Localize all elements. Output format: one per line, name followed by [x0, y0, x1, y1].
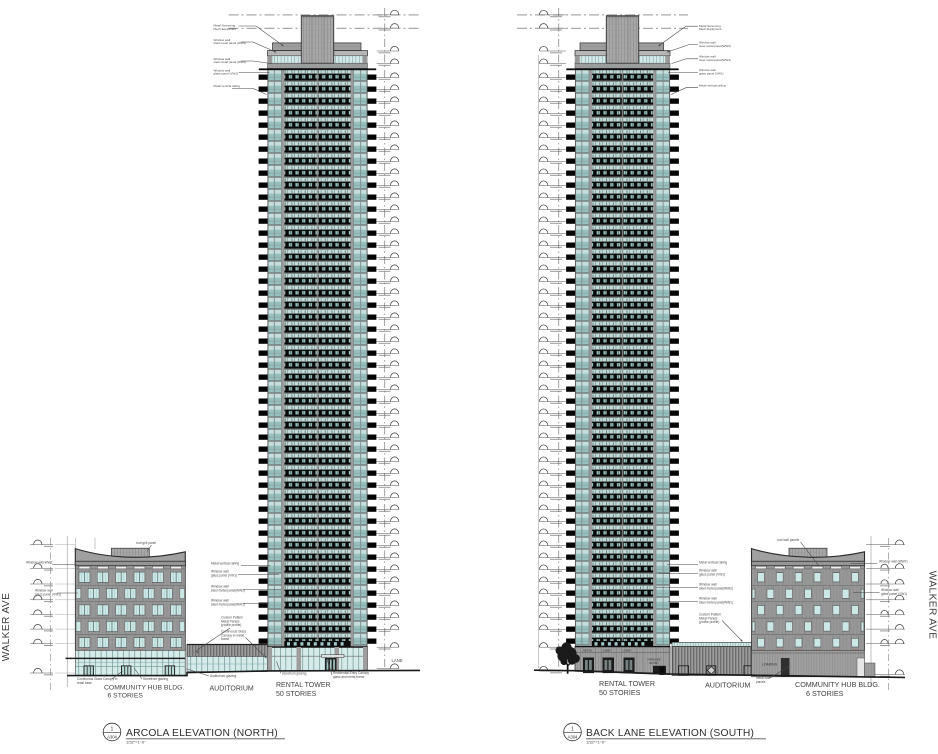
svg-text:steel metal panel(WW1): steel metal panel(WW1)	[699, 58, 731, 62]
svg-text:50 STORIES: 50 STORIES	[276, 691, 317, 698]
svg-text:panels: panels	[756, 680, 766, 684]
svg-text:(profile profile): (profile profile)	[699, 620, 719, 624]
svg-text:steel metal panel(WW2): steel metal panel(WW2)	[699, 44, 731, 48]
svg-text:Window wall WW2: Window wall WW2	[26, 561, 53, 565]
svg-text:Storefront glazing: Storefront glazing	[143, 677, 168, 681]
svg-text:storefront glazing: storefront glazing	[282, 672, 307, 676]
svg-text:glass panel (VW1): glass panel (VW1)	[211, 573, 237, 577]
svg-text:6 STORIES: 6 STORIES	[806, 689, 844, 698]
svg-text:AUDITORIUM: AUDITORIUM	[210, 685, 254, 692]
svg-text:ARCOLA ELEVATION (NORTH): ARCOLA ELEVATION (NORTH)	[126, 728, 278, 739]
svg-text:(profile profile): (profile profile)	[221, 623, 241, 627]
svg-text:roof wall panels: roof wall panels	[777, 538, 800, 542]
svg-text:Auditorium glazing: Auditorium glazing	[210, 674, 236, 678]
svg-text:roof grill panel: roof grill panel	[136, 541, 156, 545]
svg-text:COMMUNITY HUB BLDG.: COMMUNITY HUB BLDG.	[795, 680, 880, 689]
svg-text:steel metal panel(WW1): steel metal panel(WW1)	[699, 600, 733, 604]
svg-text:1: 1	[111, 727, 114, 733]
svg-text:RETAIL: RETAIL	[583, 649, 593, 653]
svg-text:1/32"=1'-0": 1/32"=1'-0"	[586, 739, 606, 744]
svg-text:RENTAL TOWER: RENTAL TOWER	[599, 679, 655, 688]
svg-text:BACK LANE ELEVATION (SOUTH): BACK LANE ELEVATION (SOUTH)	[586, 728, 754, 739]
svg-text:frame: frame	[221, 637, 229, 641]
svg-text:ENTRY: ENTRY	[650, 661, 660, 665]
svg-text:6 STORIES: 6 STORIES	[108, 693, 144, 700]
svg-text:retail base: retail base	[77, 681, 92, 685]
svg-text:Metal vertical railing: Metal vertical railing	[699, 84, 726, 88]
svg-text:LOBBY: LOBBY	[623, 649, 632, 653]
svg-text:steel metal panel (WW2): steel metal panel (WW2)	[214, 41, 247, 45]
svg-text:Window wall (WW2): Window wall (WW2)	[879, 560, 908, 564]
svg-text:AUDITORIUM: AUDITORIUM	[705, 681, 750, 690]
svg-text:RENTAL TOWER: RENTAL TOWER	[276, 682, 331, 689]
svg-text:A304: A304	[568, 735, 578, 740]
svg-text:Metal vertical railing: Metal vertical railing	[211, 562, 239, 566]
svg-text:LOBBY: LOBBY	[603, 649, 612, 653]
svg-text:Metal vertical railing: Metal vertical railing	[699, 561, 727, 565]
svg-text:A304: A304	[107, 735, 117, 740]
svg-text:Mech Equipment: Mech Equipment	[699, 27, 722, 31]
svg-text:WALKER AVE: WALKER AVE	[1, 593, 12, 662]
svg-text:glass panel (VW1): glass panel (VW1)	[214, 72, 239, 76]
svg-text:Metal vertical railing: Metal vertical railing	[214, 84, 241, 88]
svg-text:steel metal panel(WW2): steel metal panel(WW2)	[211, 588, 245, 592]
svg-text:COMMUNITY HUB BLDG.: COMMUNITY HUB BLDG.	[104, 685, 184, 692]
svg-text:steel metal panel(WW2): steel metal panel(WW2)	[699, 586, 733, 590]
svg-text:1: 1	[571, 727, 574, 733]
svg-text:Mech Equipment: Mech Equipment	[214, 27, 237, 31]
svg-text:1/32"=1'-0": 1/32"=1'-0"	[126, 739, 146, 744]
svg-text:glass and metal frame: glass and metal frame	[333, 675, 365, 679]
svg-text:LOADING: LOADING	[762, 663, 778, 667]
svg-text:glass panel (VW1): glass panel (VW1)	[699, 572, 725, 576]
svg-text:WALKER AVE: WALKER AVE	[927, 571, 938, 640]
svg-text:glass panel (VW1): glass panel (VW1)	[881, 592, 907, 596]
svg-text:steel metal panel(WW1): steel metal panel(WW1)	[211, 602, 245, 606]
svg-text:50 STORIES: 50 STORIES	[599, 688, 641, 697]
svg-text:LANE: LANE	[392, 658, 403, 663]
svg-text:glass panel (VW1): glass panel (VW1)	[699, 72, 724, 76]
svg-text:steel metal panel (WW1): steel metal panel (WW1)	[214, 60, 247, 64]
